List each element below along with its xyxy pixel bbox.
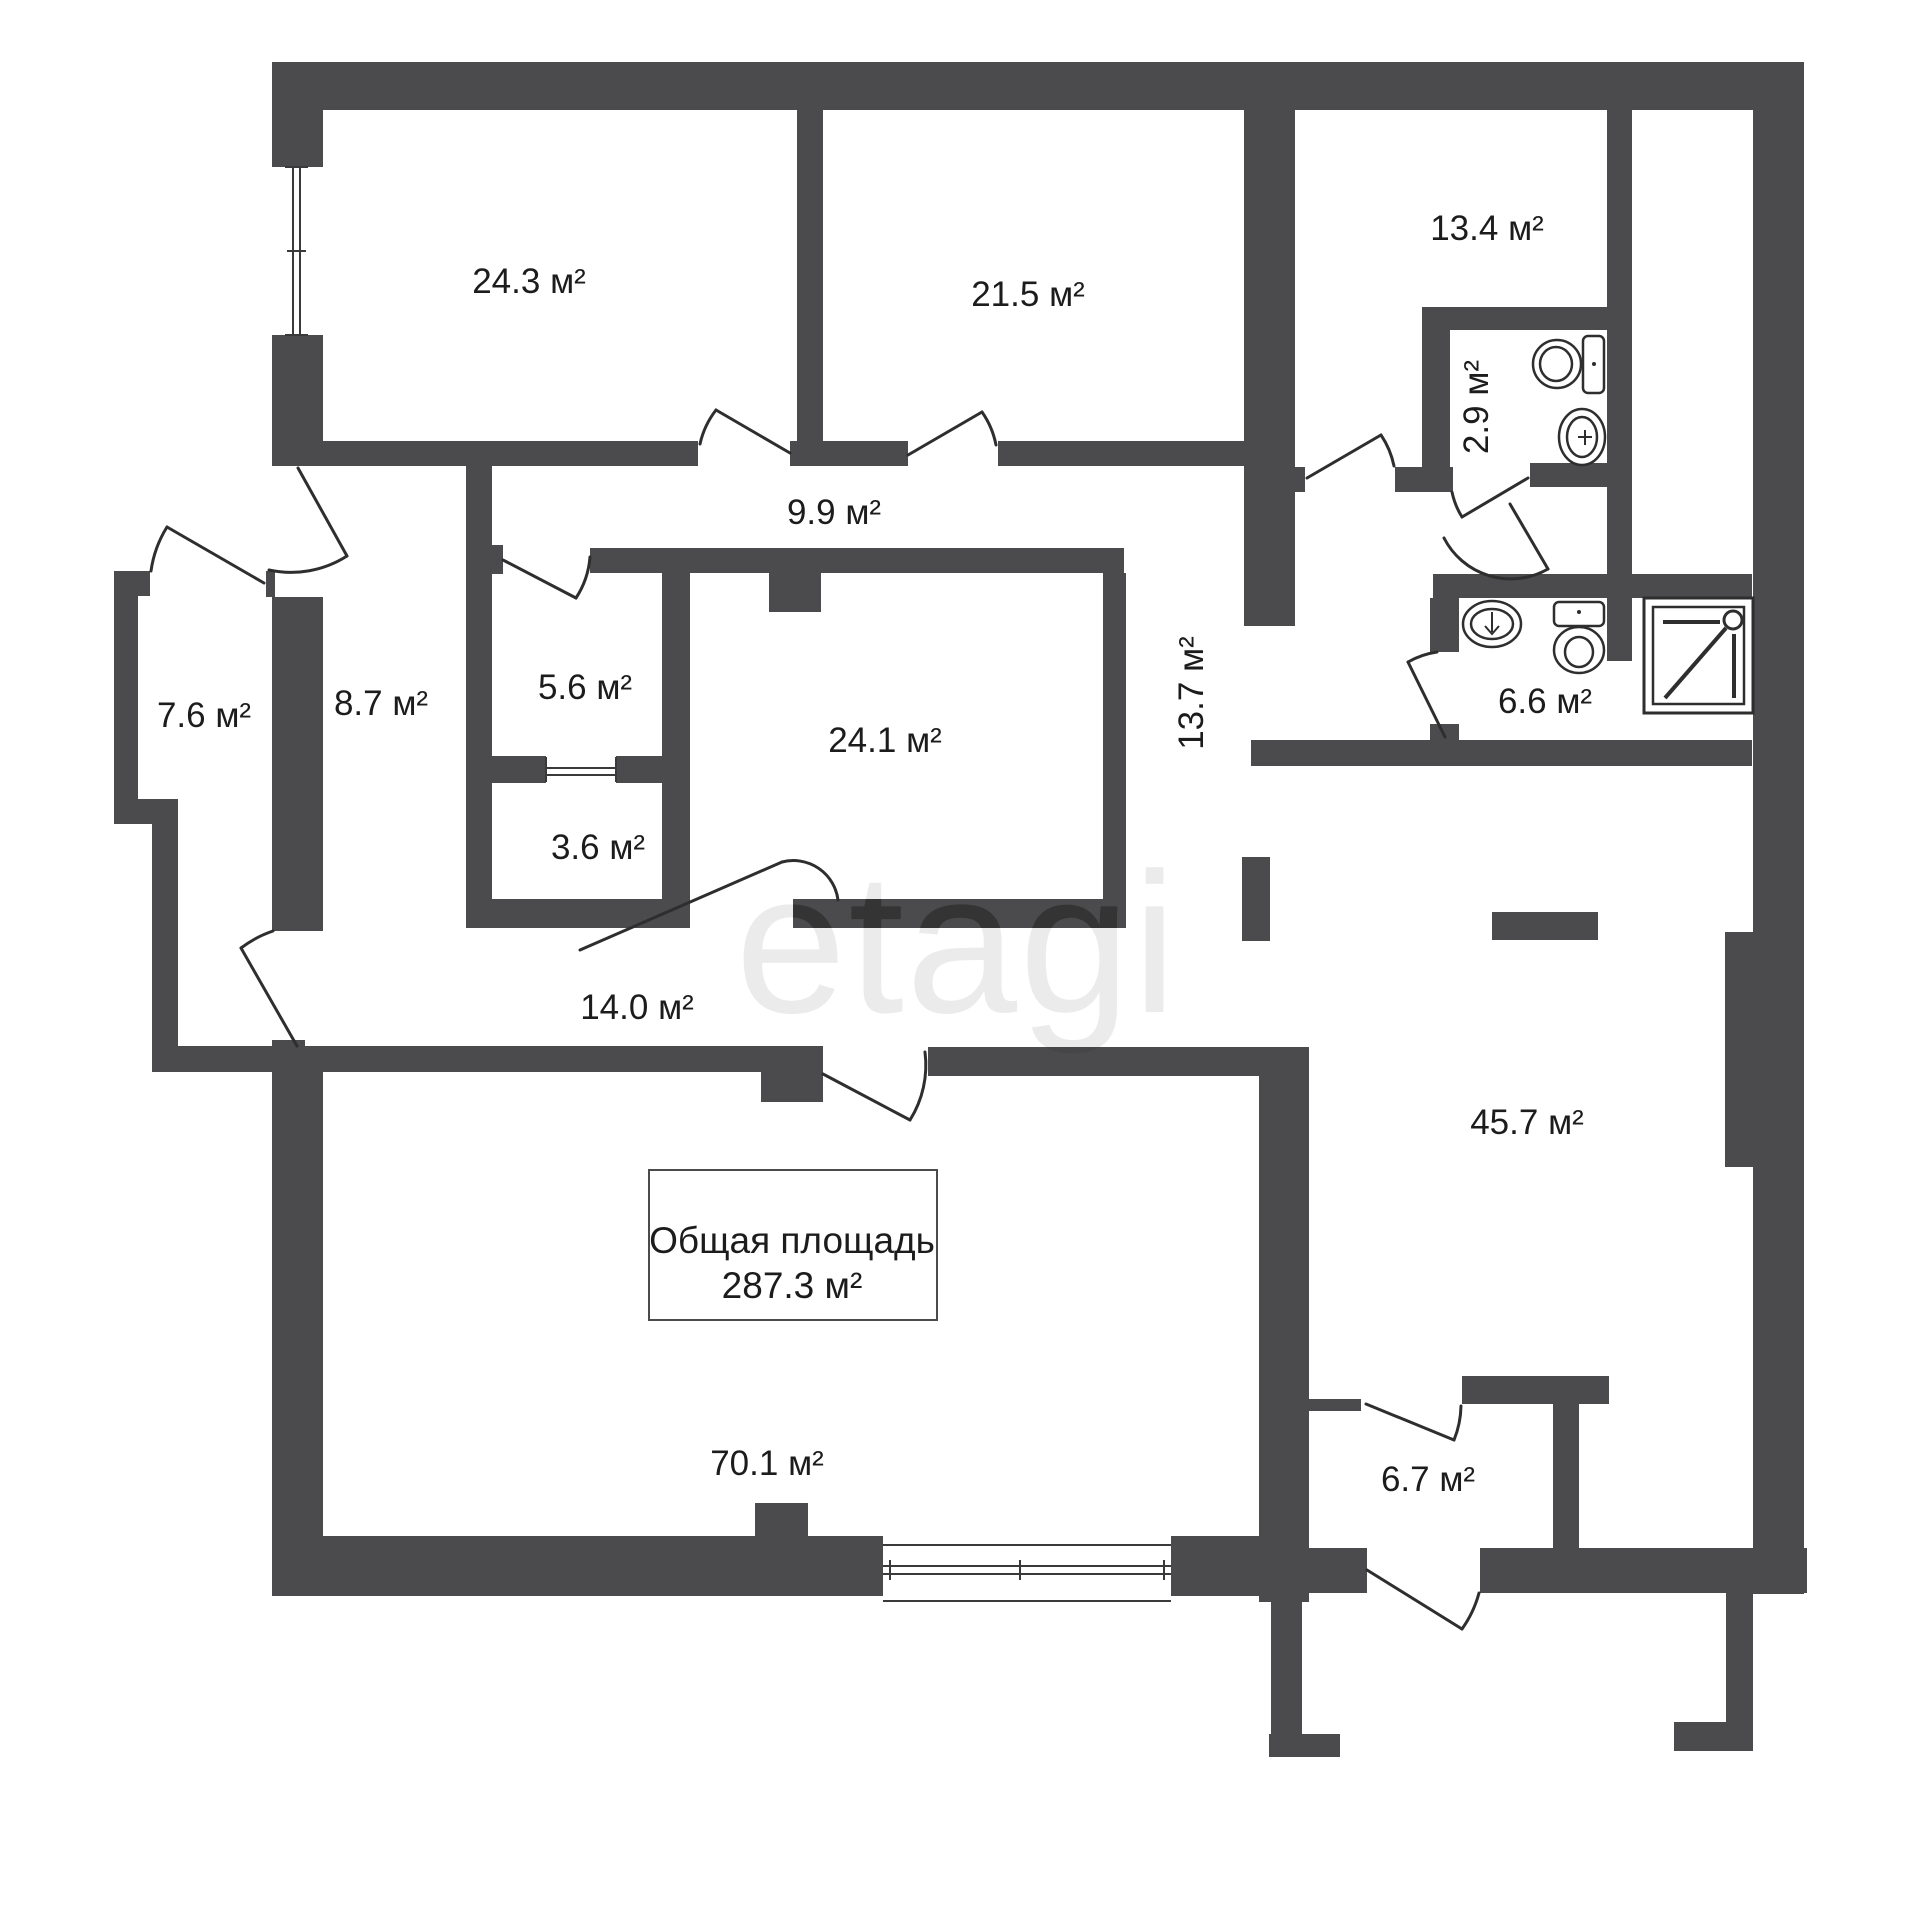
svg-text:etagi: etagi (735, 832, 1179, 1055)
svg-text:287.3 м²: 287.3 м² (722, 1265, 863, 1306)
svg-text:13.4 м²: 13.4 м² (1430, 209, 1544, 248)
svg-text:8.7 м²: 8.7 м² (334, 684, 428, 723)
svg-text:14.0 м²: 14.0 м² (580, 988, 694, 1027)
svg-text:21.5 м²: 21.5 м² (971, 275, 1085, 314)
svg-text:9.9 м²: 9.9 м² (787, 493, 881, 532)
svg-text:5.6 м²: 5.6 м² (538, 668, 632, 707)
svg-text:7.6 м²: 7.6 м² (157, 696, 251, 735)
svg-text:6.6 м²: 6.6 м² (1498, 682, 1592, 721)
svg-text:3.6 м²: 3.6 м² (551, 828, 645, 867)
svg-text:2.9 м²: 2.9 м² (1457, 360, 1496, 454)
svg-text:Общая площадь: Общая площадь (649, 1220, 935, 1261)
svg-text:24.1 м²: 24.1 м² (828, 721, 942, 760)
svg-text:13.7 м²: 13.7 м² (1172, 636, 1211, 750)
svg-text:70.1 м²: 70.1 м² (710, 1444, 824, 1483)
svg-text:6.7 м²: 6.7 м² (1381, 1460, 1475, 1499)
svg-text:45.7 м²: 45.7 м² (1470, 1103, 1584, 1142)
svg-text:24.3 м²: 24.3 м² (472, 262, 586, 301)
